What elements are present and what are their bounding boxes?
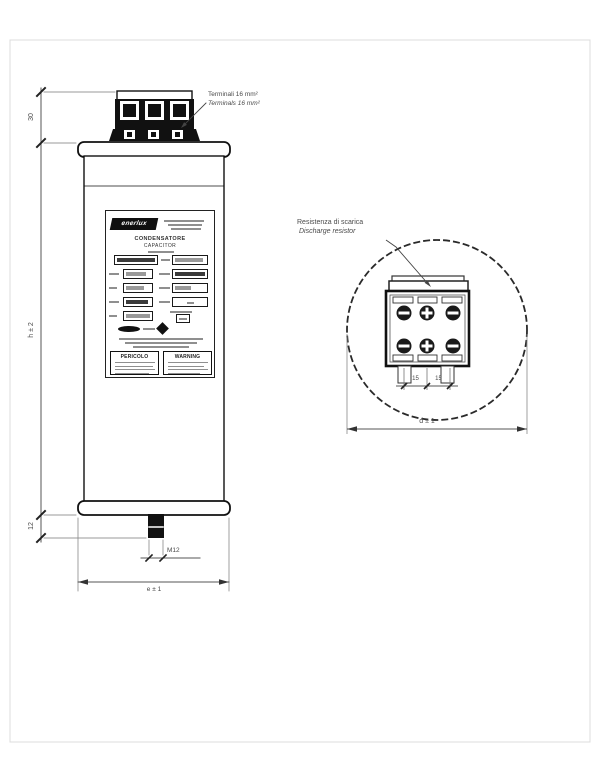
discharge-note-it: Resistenza di scarica (297, 219, 363, 227)
nameplate-field-label (109, 315, 117, 317)
nameplate-field-label (161, 259, 170, 261)
terminal-block-front (109, 91, 200, 141)
brand-logo: enerlux (110, 218, 159, 230)
warning-box-en: WARNING (163, 351, 212, 375)
nameplate-field-label (109, 287, 117, 289)
dim-stud-thread: M12 (167, 547, 180, 555)
nameplate-text-line (143, 328, 155, 330)
nameplate-text-line (171, 228, 201, 230)
nameplate-title-en: CAPACITOR (106, 243, 214, 249)
approval-mark-icon (118, 326, 140, 332)
terminals-note-en: Terminals 16 mm² (208, 100, 260, 108)
nameplate-field-box (123, 297, 153, 307)
nameplate-field-label (159, 301, 170, 303)
nameplate-text-line (168, 224, 202, 226)
nameplate-field-box (172, 269, 208, 279)
dim-stud-length: 12 (28, 516, 36, 536)
nameplate-field-label (109, 273, 119, 275)
dim-terminal-height: 30 (28, 107, 36, 127)
dim-diameter: d ± 1 (412, 418, 442, 426)
nameplate-field-label (159, 287, 170, 289)
can-bottom-rim (78, 501, 230, 515)
dim-case-width: e ± 1 (140, 586, 168, 594)
nameplate-field-box (172, 283, 208, 293)
warning-heading-it: PERICOLO (111, 354, 158, 360)
mounting-stud (148, 514, 164, 538)
warning-heading-en: WARNING (164, 354, 211, 360)
nameplate-text-line (125, 342, 197, 344)
dim-pitch-right: 15 (432, 375, 445, 383)
warning-box-it: PERICOLO (110, 351, 159, 375)
approval-mark-icon (156, 322, 169, 335)
drawing-sheet: Terminali 16 mm² Terminals 16 mm² Resist… (0, 0, 600, 780)
nameplate-title-it: CONDENSATORE (106, 236, 214, 242)
nameplate-text-line (148, 251, 174, 253)
nameplate-field-label (109, 301, 119, 303)
terminal-block-top (386, 291, 469, 383)
nameplate-field-box (172, 297, 208, 307)
nameplate-field-box (123, 311, 153, 321)
nameplate-field-label (159, 273, 170, 275)
nameplate-text-line (164, 220, 204, 222)
dim-case-height: h ± 2 (28, 315, 36, 345)
can-top-rim (78, 142, 230, 157)
nameplate: enerlux CONDENSATORE CAPACITOR PERICOLO … (105, 210, 215, 378)
nameplate-text-line (119, 338, 203, 340)
terminals-note-it: Terminali 16 mm² (208, 91, 258, 99)
nameplate-field-box (123, 283, 153, 293)
dim-pitch-left: 15 (409, 375, 422, 383)
nameplate-field-box (123, 269, 153, 279)
nameplate-field-label (170, 311, 192, 313)
top-view (347, 240, 527, 434)
nameplate-mark-box (176, 314, 190, 323)
nameplate-field-box (114, 255, 158, 265)
discharge-note-en: Discharge resistor (299, 228, 355, 236)
drawing-linework (0, 0, 600, 780)
nameplate-field-box (172, 255, 208, 265)
nameplate-text-line (133, 346, 189, 348)
